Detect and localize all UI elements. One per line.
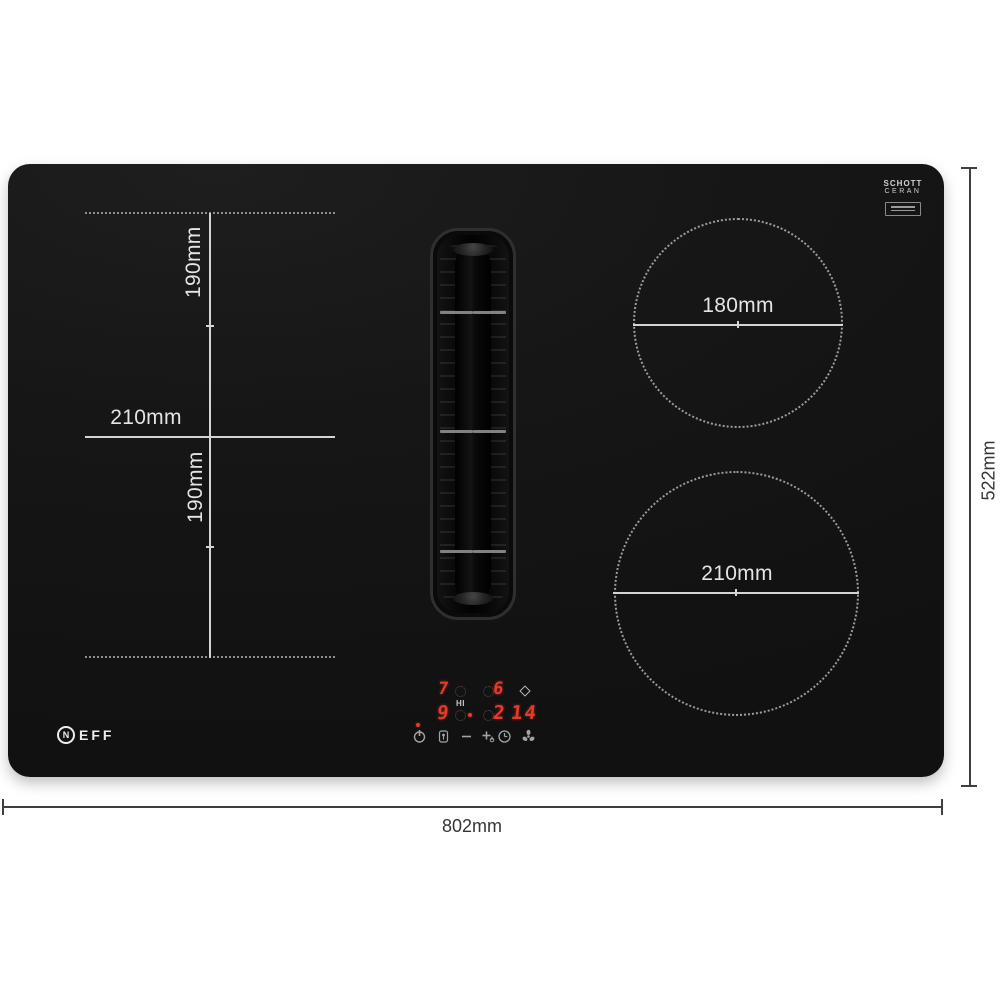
width-dimension-tick-left — [2, 799, 4, 815]
child-lock-icon — [436, 729, 451, 744]
flex-zone-width-label: 210mm — [106, 406, 186, 430]
display-level-right-top: 6 — [492, 681, 504, 698]
display-level-left-top: 7 — [437, 681, 449, 698]
width-dimension-label: 802mm — [422, 816, 522, 837]
minus-icon — [459, 729, 474, 744]
flex-zone-mid-tick-top — [206, 325, 214, 327]
vent-crossbar — [440, 550, 473, 553]
zone-indicator-dot — [455, 686, 466, 697]
neff-logo: N EFF — [57, 726, 114, 744]
fan-icon — [521, 729, 536, 744]
display-level-right-bottom: 2 — [492, 704, 506, 723]
water-drop-icon — [519, 685, 530, 696]
vent-cap-bottom — [453, 592, 493, 605]
height-dimension-label: 522mm — [979, 431, 1000, 511]
vent-cap-top — [453, 243, 493, 256]
ceran-sublogo-box — [885, 202, 921, 216]
height-dimension-line — [969, 168, 971, 786]
vent-roller — [455, 247, 491, 601]
flex-zone-mid-tick-bottom — [206, 546, 214, 548]
downdraft-vent-module — [430, 228, 516, 620]
neff-logo-initial: N — [63, 730, 70, 740]
neff-logo-text: EFF — [79, 727, 114, 743]
burner-210-label: 210mm — [687, 562, 787, 586]
zone-indicator-dot — [455, 710, 466, 721]
ceran-line1: SCHOTT — [879, 179, 927, 188]
vent-crossbar — [473, 550, 506, 553]
width-dimension-line — [2, 806, 943, 808]
burner-180-center-tick — [737, 321, 739, 328]
ceran-line2: CERAN — [879, 188, 927, 196]
height-dimension-tick-top — [961, 167, 977, 169]
product-dimension-diagram: SCHOTT CERAN 190mm 210mm 190mm 180mm 210… — [0, 0, 1000, 1000]
height-dimension-tick-bottom — [961, 785, 977, 787]
plus-icon — [480, 729, 495, 744]
vent-crossbar — [440, 311, 473, 314]
vent-crossbar — [473, 430, 506, 433]
power-indicator-dot — [416, 723, 420, 727]
decimal-dot — [468, 713, 472, 717]
flex-zone-vertical-line — [209, 213, 211, 658]
display-timer: 14 — [510, 704, 539, 723]
burner-180-label: 180mm — [688, 294, 788, 318]
display-level-left-bottom: 9 — [436, 704, 450, 723]
hob-surface: SCHOTT CERAN 190mm 210mm 190mm 180mm 210… — [8, 164, 944, 777]
vent-crossbar — [473, 311, 506, 314]
vent-crossbar — [440, 430, 473, 433]
neff-logo-circle: N — [57, 726, 75, 744]
power-icon — [412, 729, 427, 744]
burner-210-center-tick — [735, 589, 737, 596]
flex-zone-bottom-height-label: 190mm — [184, 453, 208, 523]
boost-hi-label: HI — [456, 699, 465, 708]
timer-clock-icon — [497, 729, 512, 744]
vent-grille — [437, 235, 509, 613]
schott-ceran-logo: SCHOTT CERAN — [879, 179, 927, 216]
flex-zone-top-height-label: 190mm — [182, 228, 206, 298]
width-dimension-tick-right — [941, 799, 943, 815]
